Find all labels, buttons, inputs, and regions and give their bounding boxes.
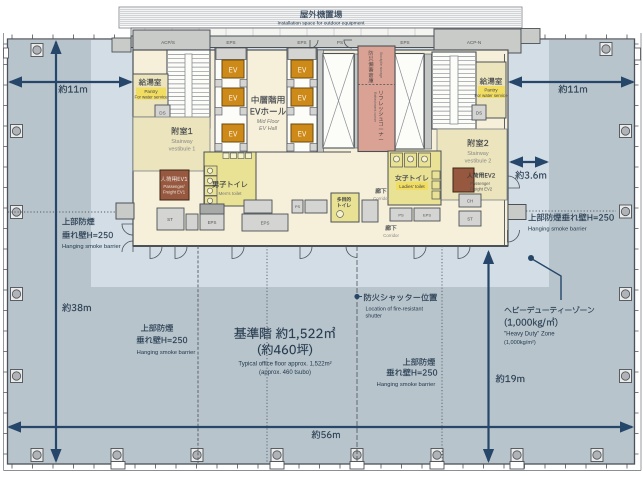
svg-text:vestibule 2: vestibule 2 <box>465 159 492 165</box>
svg-text:EV Hall: EV Hall <box>259 126 278 132</box>
svg-text:EPS: EPS <box>226 40 235 45</box>
svg-text:EPS: EPS <box>297 40 306 45</box>
svg-text:ST: ST <box>167 217 173 222</box>
svg-text:(1,000kg/m²): (1,000kg/m²) <box>504 340 536 346</box>
svg-text:CH: CH <box>467 199 473 204</box>
svg-text:DS: DS <box>476 111 482 116</box>
svg-text:Hanging smoke barrier: Hanging smoke barrier <box>62 244 121 250</box>
svg-text:Typical office floor approx. 1: Typical office floor approx. 1,522m² <box>238 362 331 368</box>
svg-text:Hanging smoke barrier: Hanging smoke barrier <box>528 227 587 233</box>
svg-text:ST: ST <box>467 217 473 222</box>
svg-text:EPS: EPS <box>208 220 217 225</box>
svg-text:Corridor: Corridor <box>383 233 399 238</box>
svg-text:EPS: EPS <box>423 213 431 218</box>
svg-text:Mid Floor: Mid Floor <box>257 119 280 125</box>
svg-text:Ladies' toilet: Ladies' toilet <box>399 184 425 189</box>
svg-text:EPS: EPS <box>261 221 270 226</box>
svg-text:Stockpile storage: Stockpile storage <box>379 52 383 78</box>
svg-text:Freight EV1: Freight EV1 <box>163 190 186 195</box>
svg-text:PS: PS <box>337 40 343 45</box>
svg-text:ACP/S: ACP/S <box>161 40 175 45</box>
svg-text:Freight EV2: Freight EV2 <box>470 187 493 192</box>
svg-text:EPS: EPS <box>400 40 409 45</box>
svg-text:Pantry: Pantry <box>484 88 498 93</box>
svg-text:PS: PS <box>398 213 404 218</box>
svg-text:vestibule 1: vestibule 1 <box>169 147 196 153</box>
svg-text:PS: PS <box>295 204 301 209</box>
svg-text:Passenger: Passenger <box>470 181 491 186</box>
svg-text:For water service: For water service <box>475 93 509 98</box>
svg-text:Passenger/: Passenger/ <box>163 184 185 189</box>
svg-text:Location of fire-resistant: Location of fire-resistant <box>366 307 424 313</box>
svg-text:Stairway: Stairway <box>171 139 193 145</box>
svg-text:(approx. 460 tsubo): (approx. 460 tsubo) <box>259 370 311 376</box>
svg-text:DS: DS <box>159 111 165 116</box>
svg-text:Stairway: Stairway <box>467 151 489 157</box>
svg-text:shutter: shutter <box>366 314 383 320</box>
svg-text:Men's toilet: Men's toilet <box>218 191 242 196</box>
svg-text:Hanging smoke barrier: Hanging smoke barrier <box>137 350 196 356</box>
svg-text:"Heavy Duty" Zone: "Heavy Duty" Zone <box>504 332 555 338</box>
svg-text:For water service: For water service <box>135 95 169 100</box>
svg-text:ACP-N: ACP-N <box>467 40 481 45</box>
svg-text:Refreshment corner: Refreshment corner <box>373 92 377 123</box>
svg-text:Installation space for outdoo: Installation space for outdoor equipment <box>278 21 366 27</box>
svg-text:Hanging smoke barrier: Hanging smoke barrier <box>377 382 436 388</box>
svg-text:Pantry: Pantry <box>144 89 158 94</box>
